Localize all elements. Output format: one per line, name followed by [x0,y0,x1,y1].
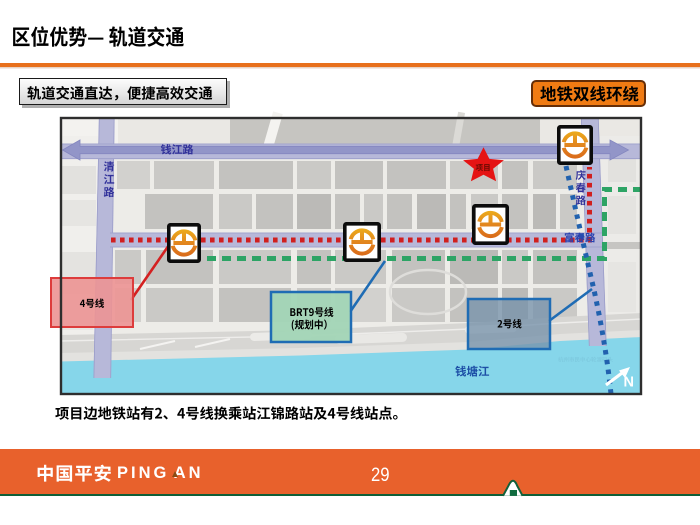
svg-text:N: N [624,375,634,391]
